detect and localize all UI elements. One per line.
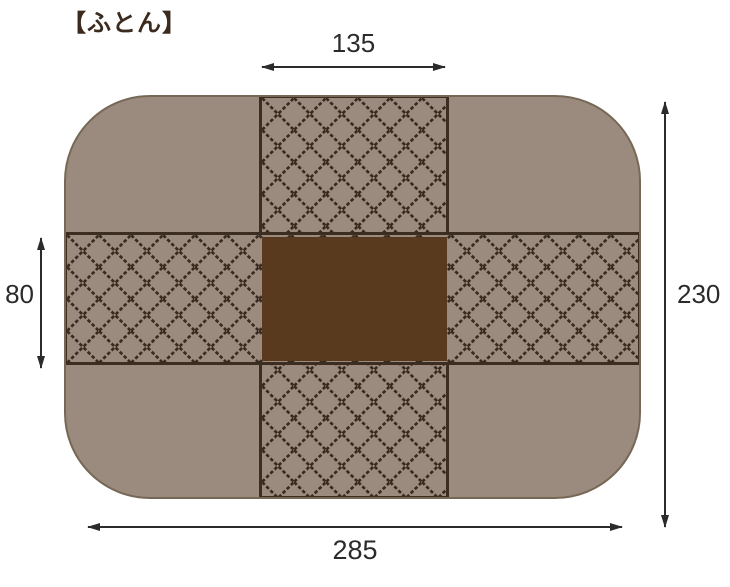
futon-illustration: [64, 95, 641, 499]
dimension-label-band-height: 80: [0, 281, 34, 307]
page-title: 【ふとん】: [62, 3, 187, 38]
dimension-arrow-center-width: [262, 66, 445, 68]
arrowhead-up-icon: [37, 237, 45, 250]
arrowhead-right-icon: [610, 523, 623, 531]
center-dark-panel: [262, 237, 447, 361]
arrowhead-down-icon: [37, 356, 45, 369]
dimension-label-overall-width: 285: [88, 537, 622, 563]
dimension-label-overall-height: 230: [677, 281, 720, 307]
arrowhead-left-icon: [87, 523, 100, 531]
arrowhead-left-icon: [261, 63, 274, 71]
arrowhead-right-icon: [433, 63, 446, 71]
dimension-label-center-width: 135: [262, 30, 445, 56]
dimension-arrow-overall-width: [88, 526, 622, 528]
dimension-arrow-band-height: [40, 238, 42, 368]
futon-diagram-page: { "title": "【ふとん】", "diagram": { "type":…: [0, 0, 730, 587]
arrowhead-up-icon: [661, 101, 669, 114]
arrowhead-down-icon: [661, 515, 669, 528]
dimension-arrow-overall-height: [664, 102, 666, 527]
